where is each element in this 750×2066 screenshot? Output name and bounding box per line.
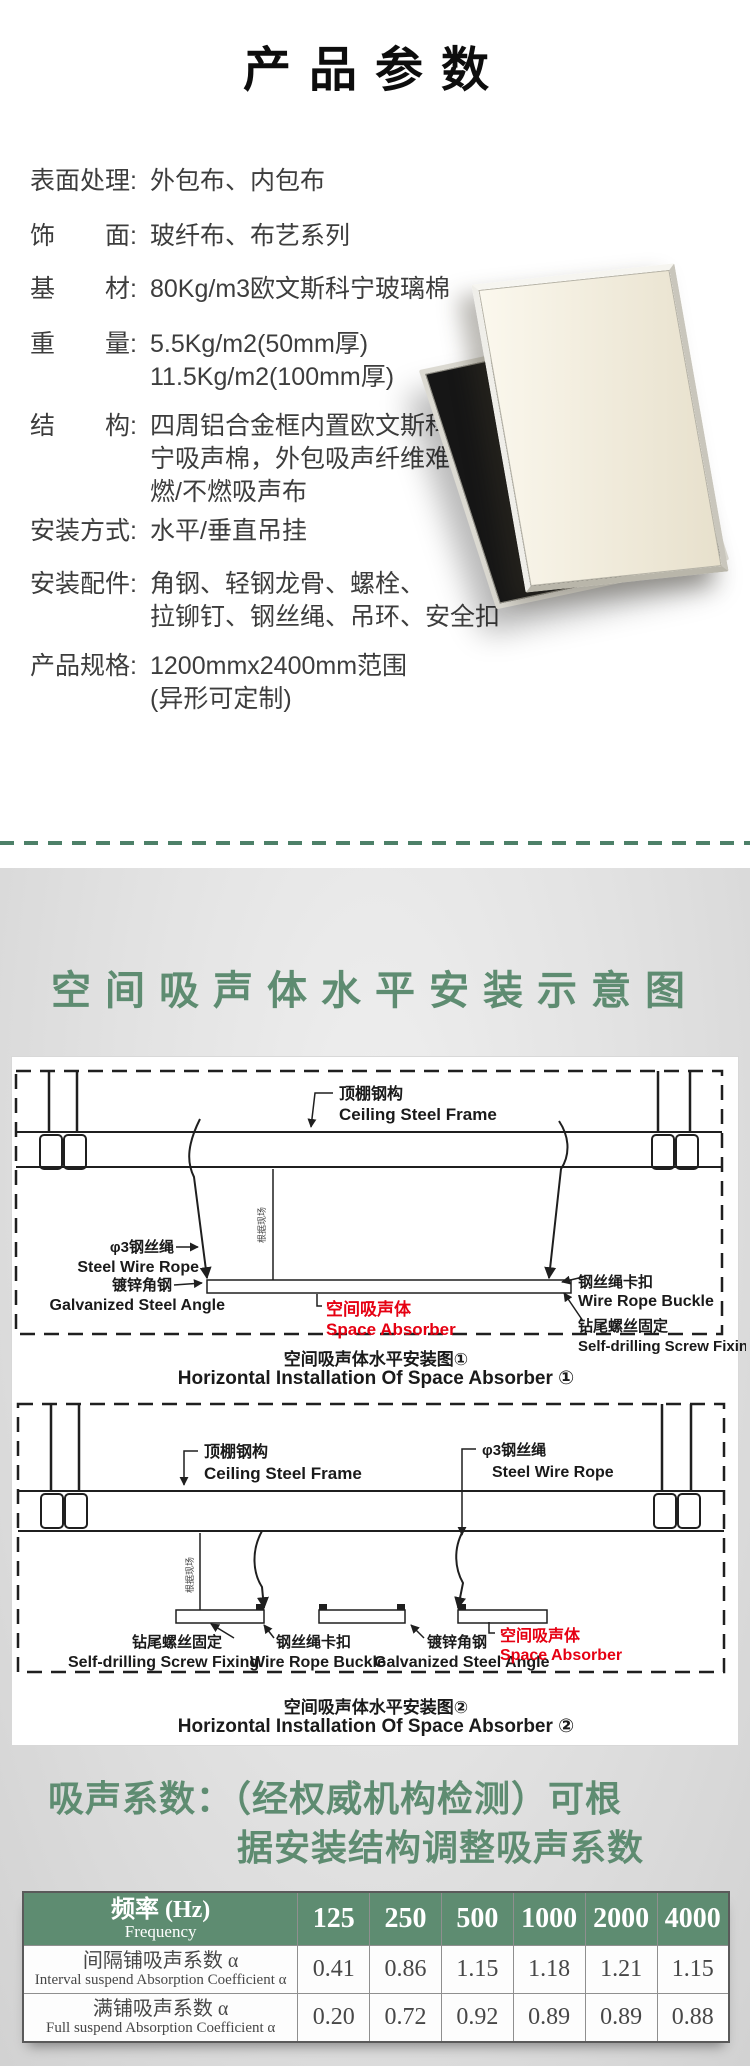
spec-value: 玻纤布、布艺系列 — [150, 220, 350, 253]
value-cell: 0.41 — [298, 1946, 370, 1994]
table-row-interval: 间隔铺吸声系数 α Interval suspend Absorption Co… — [23, 1946, 729, 1994]
frequency-header-cell: 频率 (Hz) Frequency — [23, 1892, 298, 1946]
diagram2-absorber-bars — [176, 1604, 547, 1623]
diagram2-site-note: 根据现场 — [184, 1557, 195, 1593]
diagram1-wire-label-zh: φ3钢丝绳 — [110, 1238, 174, 1256]
diagram1-screw-label-zh: 钻尾螺丝固定 — [578, 1317, 668, 1335]
spec-row-finish: 饰 面: 玻纤布、布艺系列 — [30, 220, 350, 253]
spec-label: 产品规格: — [30, 650, 142, 716]
diagram2-dashed-border — [18, 1404, 724, 1672]
dashed-divider — [0, 841, 750, 845]
diagram1-site-note: 根据现场 — [256, 1207, 267, 1243]
spec-value: 水平/垂直吊挂 — [150, 515, 307, 548]
absorption-coefficient-table: 频率 (Hz) Frequency 125 250 500 1000 2000 … — [22, 1891, 730, 2043]
diagram2-screw-label-en: Self-drilling Screw Fixing — [68, 1654, 259, 1671]
product-photo — [400, 180, 750, 640]
diagram2-ceiling-label-en: Ceiling Steel Frame — [204, 1464, 362, 1483]
spec-label: 基 材: — [30, 273, 142, 306]
value-cell: 0.88 — [657, 1994, 729, 2043]
table-row-full: 满铺吸声系数 α Full suspend Absorption Coeffic… — [23, 1994, 729, 2043]
frequency-header-en: Frequency — [24, 1923, 297, 1941]
diagram1-absorber-label-zh: 空间吸声体 — [326, 1299, 412, 1319]
diagram1-wire-label-en: Steel Wire Rope — [77, 1259, 199, 1276]
diagram2-screw-label-zh: 钻尾螺丝固定 — [132, 1633, 222, 1651]
spec-row-base: 基 材: 80Kg/m3欧文斯科宁玻璃棉 — [30, 273, 450, 306]
spec-row-surface: 表面处理: 外包布、内包布 — [30, 165, 325, 198]
spec-value: 1200mmx2400mm范围 (异形可定制) — [150, 650, 407, 716]
section-title: 空间吸声体水平安装示意图 — [0, 958, 750, 1016]
diagram1-ceiling-label-en: Ceiling Steel Frame — [339, 1105, 497, 1124]
value-cell: 0.89 — [513, 1994, 585, 2043]
value-cell: 0.86 — [370, 1946, 442, 1994]
value-cell: 0.89 — [585, 1994, 657, 2043]
diagram2-caption-en: Horizontal Installation Of Space Absorbe… — [12, 1715, 740, 1738]
spec-label: 饰 面: — [30, 220, 142, 253]
row-label-cell: 满铺吸声系数 α Full suspend Absorption Coeffic… — [23, 1994, 298, 2043]
diagram1-angle-label-zh: 镀锌角钢 — [112, 1276, 172, 1294]
spec-label: 安装方式: — [30, 515, 142, 548]
freq-250: 250 — [370, 1892, 442, 1946]
diagram1-left-wire — [189, 1119, 207, 1278]
value-cell: 1.21 — [585, 1946, 657, 1994]
spec-row-install-method: 安装方式: 水平/垂直吊挂 — [30, 515, 307, 548]
freq-500: 500 — [441, 1892, 513, 1946]
absorption-note-line1: 吸声系数：（经权威机构检测）可根 — [48, 1770, 622, 1822]
row-label-cell: 间隔铺吸声系数 α Interval suspend Absorption Co… — [23, 1946, 298, 1994]
diagram2-right-wire — [456, 1531, 463, 1608]
diagram1-ceiling-label-zh: 顶棚钢构 — [339, 1084, 403, 1103]
diagram1-buckle-label-zh: 钢丝绳卡扣 — [578, 1273, 653, 1291]
installation-diagram-2: 顶棚钢构 Ceiling Steel Frame φ3钢丝绳 Steel Wir… — [6, 1395, 746, 1683]
diagram1-absorber-bar — [207, 1280, 571, 1293]
diagram2-buckle-label-zh: 钢丝绳卡扣 — [276, 1633, 351, 1651]
freq-4000: 4000 — [657, 1892, 729, 1946]
diagram2-ceiling-beam — [18, 1404, 724, 1531]
value-cell: 1.15 — [657, 1946, 729, 1994]
diagram1-right-wire — [549, 1121, 568, 1278]
value-cell: 1.18 — [513, 1946, 585, 1994]
spec-label: 表面处理: — [30, 165, 142, 198]
diagram2-absorber-label-en: Space Absorber — [500, 1647, 622, 1664]
value-cell: 0.92 — [441, 1994, 513, 2043]
freq-1000: 1000 — [513, 1892, 585, 1946]
spec-label: 重 量: — [30, 328, 142, 394]
spec-row-size: 产品规格: 1200mmx2400mm范围 (异形可定制) — [30, 650, 407, 716]
spec-label: 安装配件: — [30, 568, 142, 634]
diagram1-caption-en: Horizontal Installation Of Space Absorbe… — [12, 1367, 740, 1390]
spec-value: 外包布、内包布 — [150, 165, 325, 198]
diagram2-wire-label-zh: φ3钢丝绳 — [482, 1441, 546, 1459]
value-cell: 1.15 — [441, 1946, 513, 1994]
installation-diagram-1: 根据现场 顶棚钢构 Ceiling Steel Frame φ3钢丝绳 Stee… — [6, 1063, 746, 1355]
value-cell: 0.72 — [370, 1994, 442, 2043]
diagram2-left-wire — [254, 1531, 264, 1608]
diagram2-ceiling-label-zh: 顶棚钢构 — [204, 1442, 268, 1461]
diagram2-absorber-label-zh: 空间吸声体 — [500, 1626, 581, 1645]
spec-label: 结 构: — [30, 410, 142, 509]
frequency-header-zh: 频率 (Hz) — [24, 1897, 297, 1923]
spec-row-structure: 结 构: 四周铝合金框内置欧文斯科 宁吸声棉，外包吸声纤维难 燃/不燃吸声布 — [30, 410, 450, 509]
diagram2-wire-label-en: Steel Wire Rope — [492, 1464, 614, 1481]
value-cell: 0.20 — [298, 1994, 370, 2043]
freq-125: 125 — [298, 1892, 370, 1946]
spec-row-weight: 重 量: 5.5Kg/m2(50mm厚) 11.5Kg/m2(100mm厚) — [30, 328, 394, 394]
spec-value: 5.5Kg/m2(50mm厚) 11.5Kg/m2(100mm厚) — [150, 328, 394, 394]
diagram1-absorber-label-en: Space Absorber — [326, 1320, 456, 1339]
freq-2000: 2000 — [585, 1892, 657, 1946]
absorption-note-line2: 据安装结构调整吸声系数 — [237, 1819, 644, 1871]
diagram-panel: 根据现场 顶棚钢构 Ceiling Steel Frame φ3钢丝绳 Stee… — [11, 1056, 739, 1746]
diagram2-buckle-label-en: Wire Rope Buckle — [250, 1654, 386, 1671]
product-detail-page: 产品参数 表面处理: 外包布、内包布 饰 面: 玻纤布、布艺系列 基 材: 80… — [0, 0, 750, 2066]
page-title: 产品参数 — [0, 30, 750, 100]
installation-section: 空间吸声体水平安装示意图 — [0, 868, 750, 2066]
table-header-row: 频率 (Hz) Frequency 125 250 500 1000 2000 … — [23, 1892, 729, 1946]
diagram1-buckle-label-en: Wire Rope Buckle — [578, 1293, 714, 1310]
diagram1-angle-label-en: Galvanized Steel Angle — [50, 1297, 226, 1314]
diagram2-angle-label-zh: 镀锌角钢 — [427, 1633, 487, 1651]
